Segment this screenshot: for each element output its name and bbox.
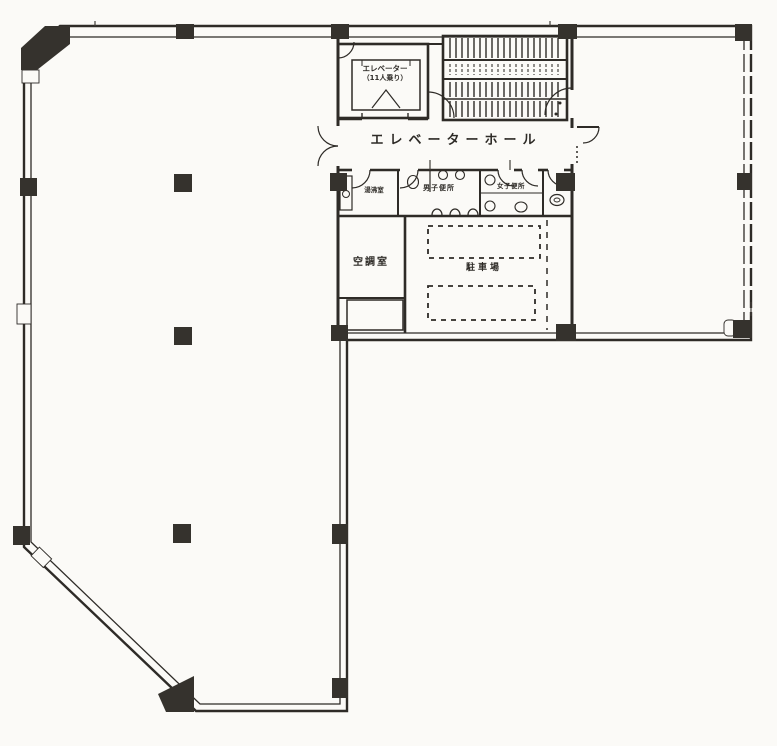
- elevator-door-mark: [372, 90, 400, 108]
- column: [558, 24, 577, 39]
- label-elevator-car: エレベーター （11人乗り）: [350, 64, 420, 83]
- urinal: [450, 209, 460, 215]
- room-office-area: [35, 40, 335, 700]
- column: [176, 24, 194, 39]
- toilet-fixture: [485, 201, 495, 211]
- parking-stall: [428, 286, 535, 320]
- parking-stall: [428, 226, 540, 258]
- parking-area: [428, 220, 547, 330]
- label-elevator-car-line2: （11人乗り）: [363, 74, 408, 82]
- label-elevator-car-line1: エレベーター: [363, 64, 408, 73]
- hvac-annex: [347, 300, 403, 330]
- corner-column: [735, 24, 752, 41]
- room-elevator-hall: [340, 121, 570, 169]
- label-mens-toilet: 男子便所: [400, 184, 478, 193]
- column: [331, 24, 349, 39]
- sink-basin: [439, 171, 448, 180]
- label-kitchenette: 湯沸室: [352, 186, 396, 194]
- column: [556, 324, 576, 341]
- stair-treads: [450, 38, 558, 117]
- sink-basin: [343, 191, 350, 198]
- sink-basin: [456, 171, 465, 180]
- label-parking: 駐車場: [432, 263, 536, 274]
- urinal: [468, 209, 478, 215]
- column: [13, 526, 30, 545]
- stairwell: [443, 36, 567, 120]
- label-hvac-room: 空調室: [339, 257, 403, 270]
- slop-sink: [550, 195, 564, 206]
- urinal: [432, 209, 442, 215]
- room-right-wing: [575, 40, 743, 330]
- label-womens-toilet: 女子便所: [481, 182, 541, 190]
- floor-plan: エレベーターホール エレベーター （11人乗り） 湯沸室 男子便所 女子便所 空…: [0, 0, 777, 746]
- hvac-room-walls: [338, 216, 405, 333]
- column: [556, 173, 575, 191]
- toilet-fixture: [515, 202, 527, 212]
